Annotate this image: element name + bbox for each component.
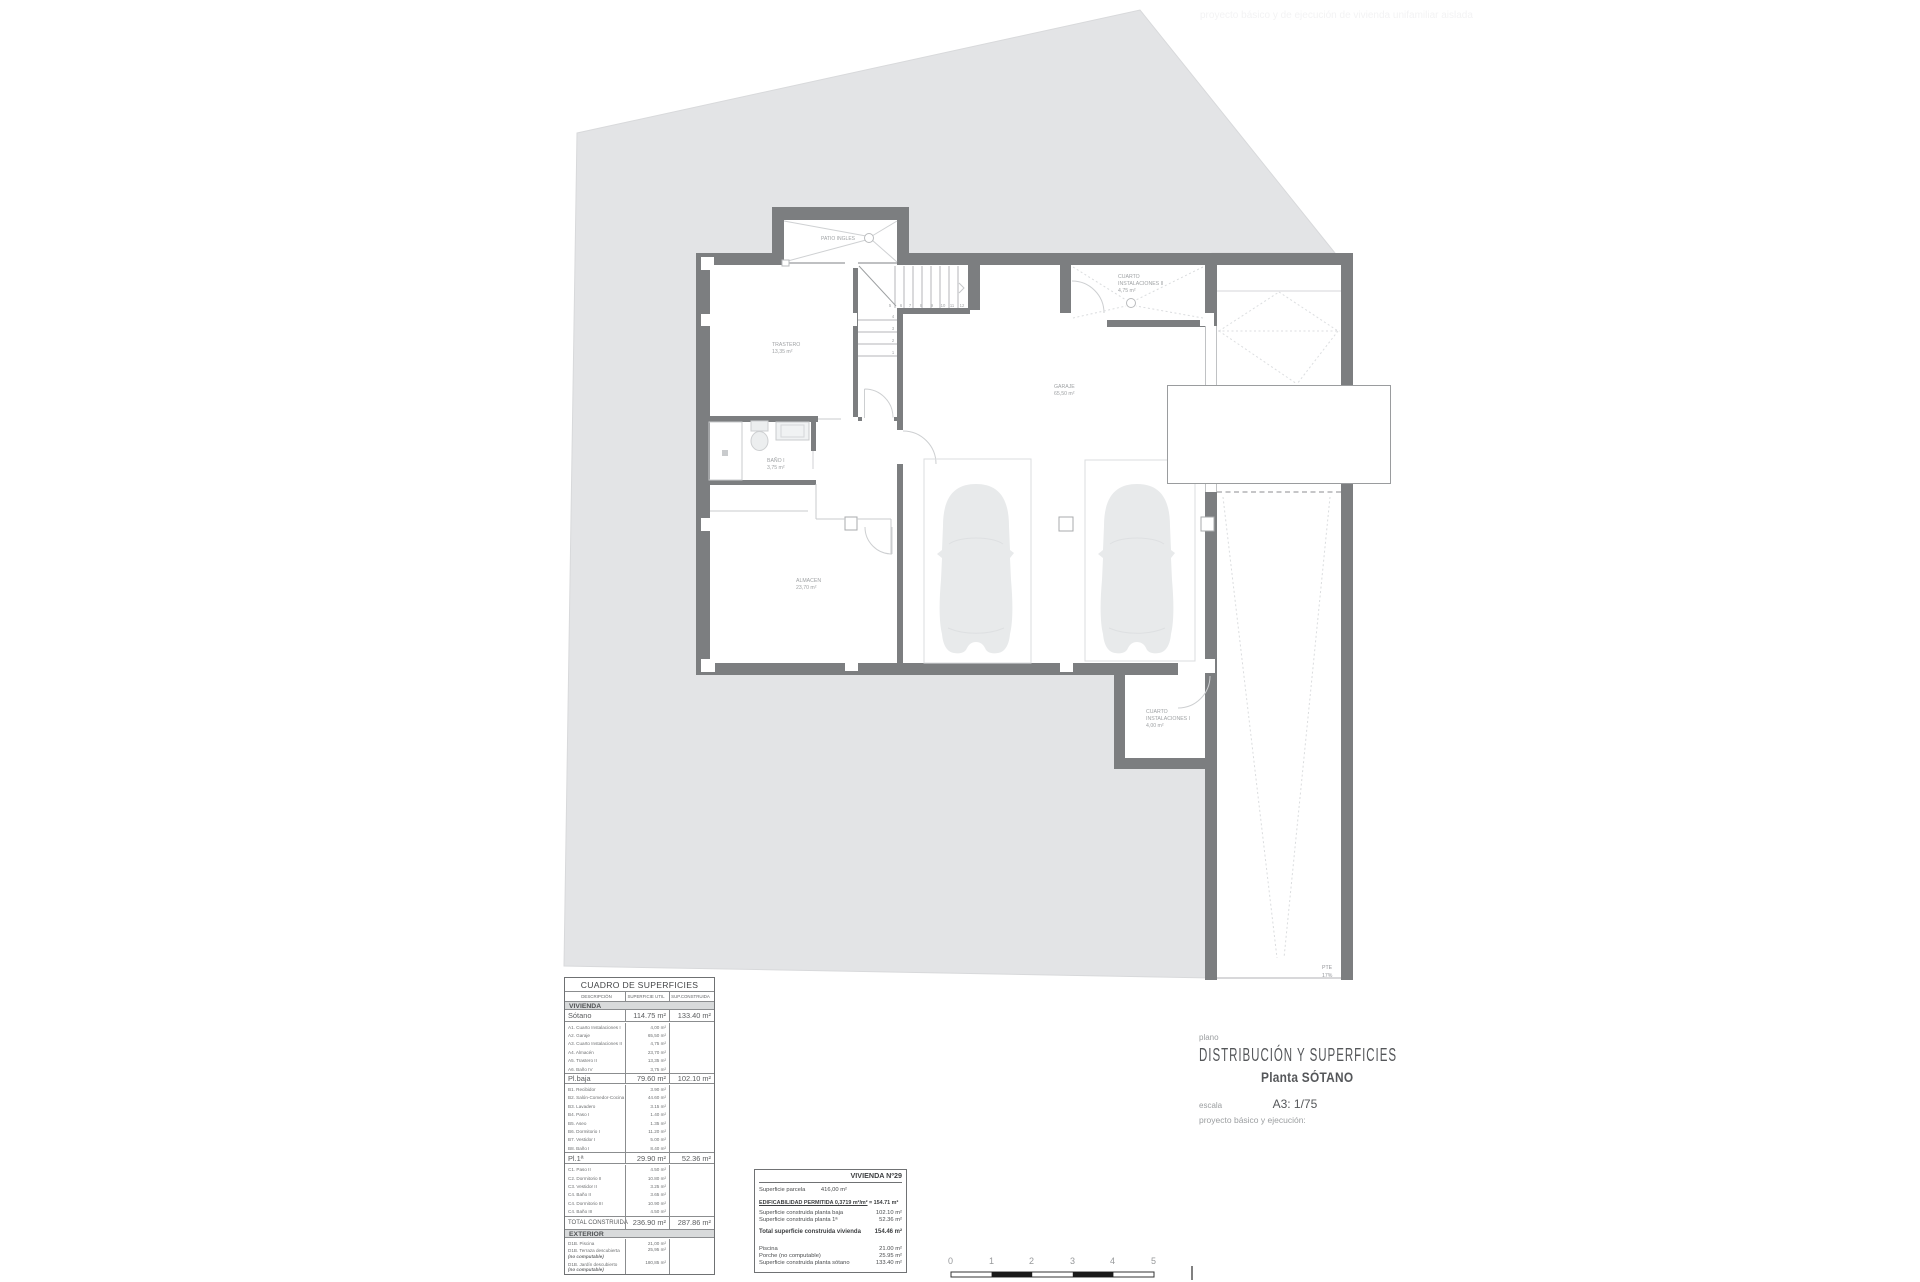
svg-text:TRASTERO: TRASTERO — [772, 342, 800, 348]
svg-text:proyecto básico y de ejecución: proyecto básico y de ejecución de vivien… — [1200, 10, 1473, 21]
svg-text:0: 0 — [948, 1256, 953, 1266]
svg-text:INSTALACIONES I: INSTALACIONES I — [1146, 716, 1190, 722]
svg-text:PTE: PTE — [1322, 965, 1333, 971]
svg-text:GARAJE: GARAJE — [1054, 384, 1075, 390]
svg-text:3,75 m²: 3,75 m² — [767, 465, 785, 471]
svg-text:INSTALACIONES II: INSTALACIONES II — [1118, 281, 1163, 287]
svg-text:PATIO INGLES: PATIO INGLES — [821, 236, 856, 242]
svg-text:11: 11 — [950, 303, 955, 308]
svg-text:CUARTO: CUARTO — [1146, 709, 1168, 715]
svg-text:3: 3 — [1070, 1256, 1075, 1266]
svg-text:13,35 m²: 13,35 m² — [772, 349, 793, 355]
svg-text:BAÑO I: BAÑO I — [767, 457, 785, 464]
svg-text:23,70 m²: 23,70 m² — [796, 585, 817, 591]
svg-text:4: 4 — [1110, 1256, 1115, 1266]
svg-text:4,75 m²: 4,75 m² — [1118, 288, 1136, 294]
svg-text:65,50 m²: 65,50 m² — [1054, 391, 1075, 397]
svg-text:17%: 17% — [1322, 973, 1333, 979]
svg-text:ALMACEN: ALMACEN — [796, 578, 821, 584]
svg-text:2: 2 — [1029, 1256, 1034, 1266]
svg-text:1: 1 — [989, 1256, 994, 1266]
svg-text:5: 5 — [1151, 1256, 1156, 1266]
svg-text:10: 10 — [941, 303, 946, 308]
svg-text:4,00 m²: 4,00 m² — [1146, 723, 1164, 729]
svg-text:CUARTO: CUARTO — [1118, 274, 1140, 280]
svg-text:12: 12 — [960, 303, 965, 308]
